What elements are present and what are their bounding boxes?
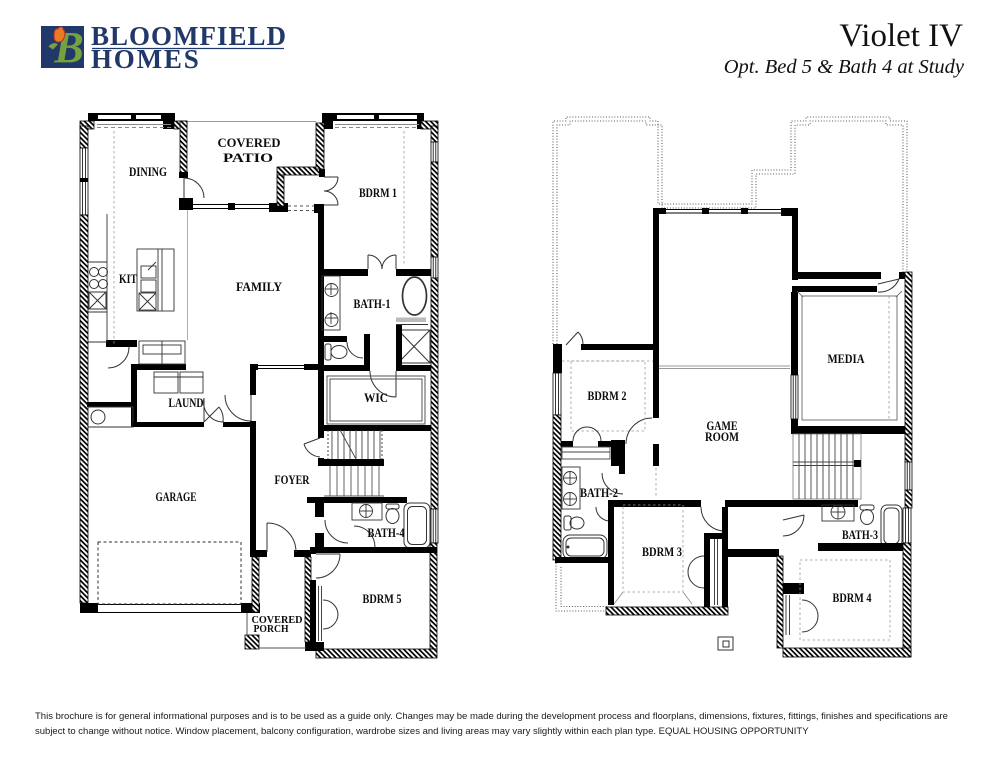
svg-text:BATH-3: BATH-3 — [842, 528, 878, 542]
svg-text:FAMILY: FAMILY — [236, 280, 282, 294]
svg-text:MEDIA: MEDIA — [828, 352, 865, 366]
svg-text:LAUND: LAUND — [169, 396, 204, 410]
svg-text:BDRM 4: BDRM 4 — [833, 591, 873, 605]
svg-text:BDRM 2: BDRM 2 — [588, 389, 627, 403]
svg-text:BATH-1: BATH-1 — [354, 297, 391, 311]
svg-text:PORCH: PORCH — [254, 623, 289, 635]
svg-text:BATH-2: BATH-2 — [580, 486, 618, 500]
svg-text:PATIO: PATIO — [223, 151, 273, 165]
svg-text:Violet IV: Violet IV — [839, 18, 963, 54]
svg-text:subject to change without noti: subject to change without notice. Window… — [35, 726, 809, 737]
svg-text:BDRM 1: BDRM 1 — [359, 186, 397, 200]
svg-text:BDRM 5: BDRM 5 — [363, 592, 402, 606]
svg-text:COVERED: COVERED — [218, 136, 281, 150]
svg-text:WIC: WIC — [364, 391, 388, 405]
svg-text:GARAGE: GARAGE — [156, 490, 197, 504]
svg-text:KIT: KIT — [119, 272, 138, 286]
svg-text:This brochure is for general i: This brochure is for general information… — [35, 711, 948, 722]
svg-text:BATH-4: BATH-4 — [368, 526, 406, 540]
svg-text:ROOM: ROOM — [705, 430, 739, 444]
svg-text:FOYER: FOYER — [275, 473, 311, 487]
svg-text:DINING: DINING — [129, 165, 167, 179]
svg-text:BDRM 3: BDRM 3 — [642, 545, 682, 559]
svg-text:Opt. Bed 5 & Bath 4 at Study: Opt. Bed 5 & Bath 4 at Study — [724, 56, 965, 78]
